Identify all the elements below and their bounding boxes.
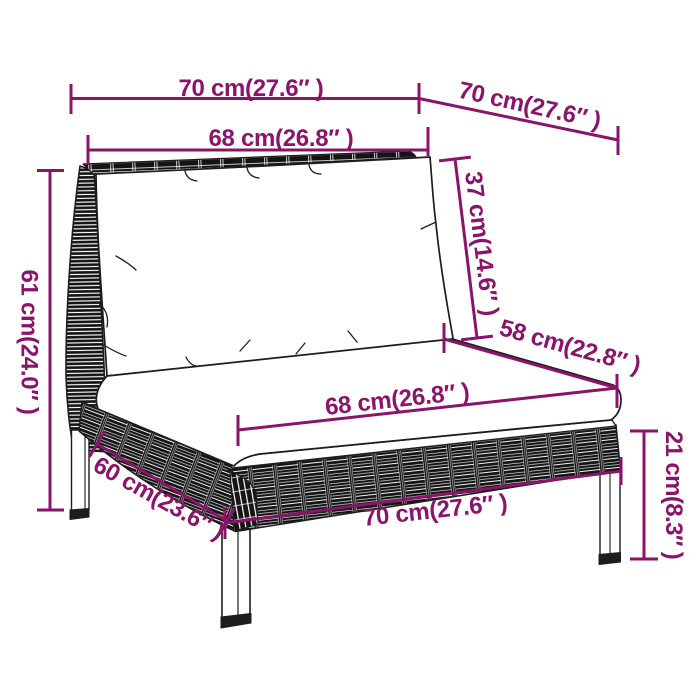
svg-text:21 cm(8.3″ ): 21 cm(8.3″ ) [660,431,687,559]
svg-text:70 cm(27.6″ ): 70 cm(27.6″ ) [178,75,323,102]
svg-text:68 cm(26.8″ ): 68 cm(26.8″ ) [208,125,353,152]
svg-text:61 cm(24.0″ ): 61 cm(24.0″ ) [16,269,43,414]
